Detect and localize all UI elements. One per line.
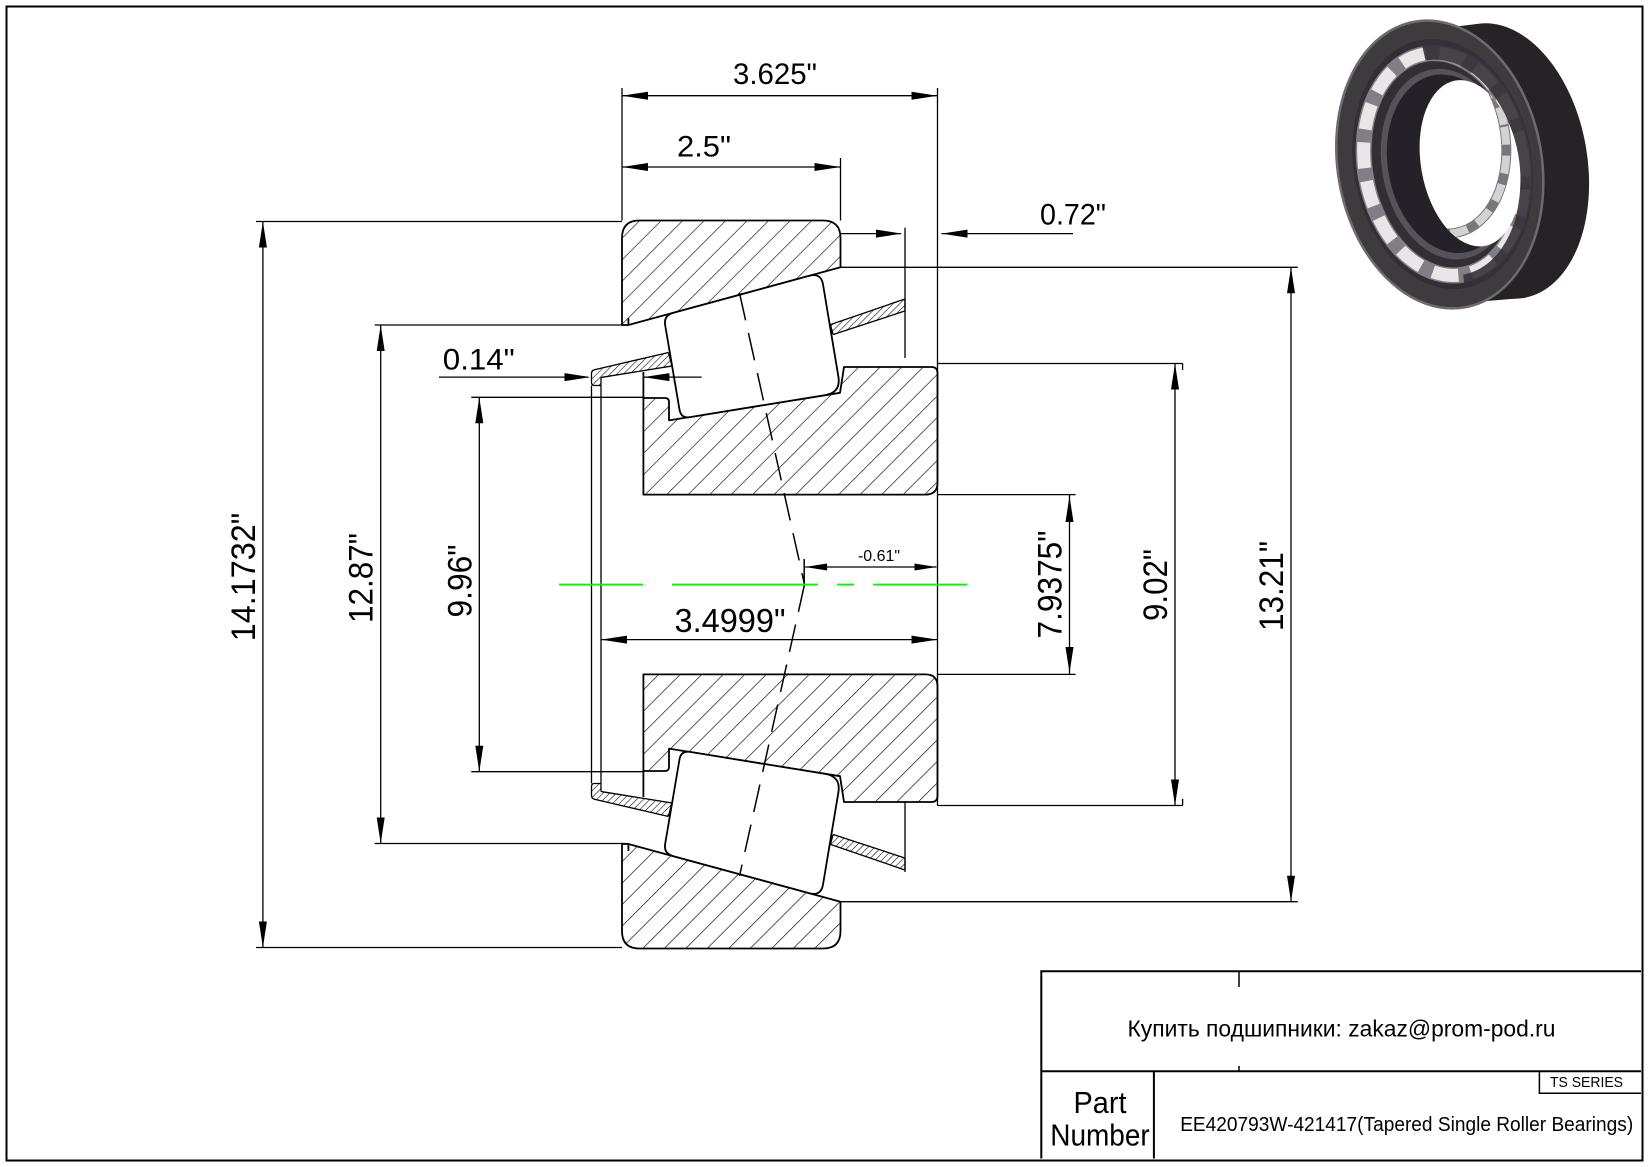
svg-text:7.9375": 7.9375": [1032, 531, 1070, 639]
svg-text:Купить подшипники: zakaz@prom-: Купить подшипники: zakaz@prom-pod.ru: [1128, 1016, 1556, 1042]
svg-text:EE420793W-421417(Tapered Singl: EE420793W-421417(Tapered Single Roller B…: [1180, 1114, 1633, 1136]
svg-text:Part: Part: [1074, 1085, 1127, 1120]
svg-text:9.96": 9.96": [441, 545, 479, 618]
svg-text:TS SERIES: TS SERIES: [1550, 1075, 1623, 1091]
svg-text:13.21": 13.21": [1253, 541, 1291, 631]
svg-text:2.5": 2.5": [677, 131, 731, 164]
svg-text:12.87": 12.87": [343, 533, 381, 623]
svg-text:0.14": 0.14": [443, 344, 515, 377]
svg-text:0.72": 0.72": [1040, 199, 1106, 232]
svg-text:3.625": 3.625": [733, 58, 817, 91]
svg-text:3.4999": 3.4999": [675, 602, 786, 639]
svg-text:Number: Number: [1050, 1118, 1150, 1153]
svg-text:14.1732": 14.1732": [225, 513, 263, 642]
svg-text:-0.61": -0.61": [858, 548, 900, 565]
svg-text:9.02": 9.02": [1137, 549, 1175, 621]
